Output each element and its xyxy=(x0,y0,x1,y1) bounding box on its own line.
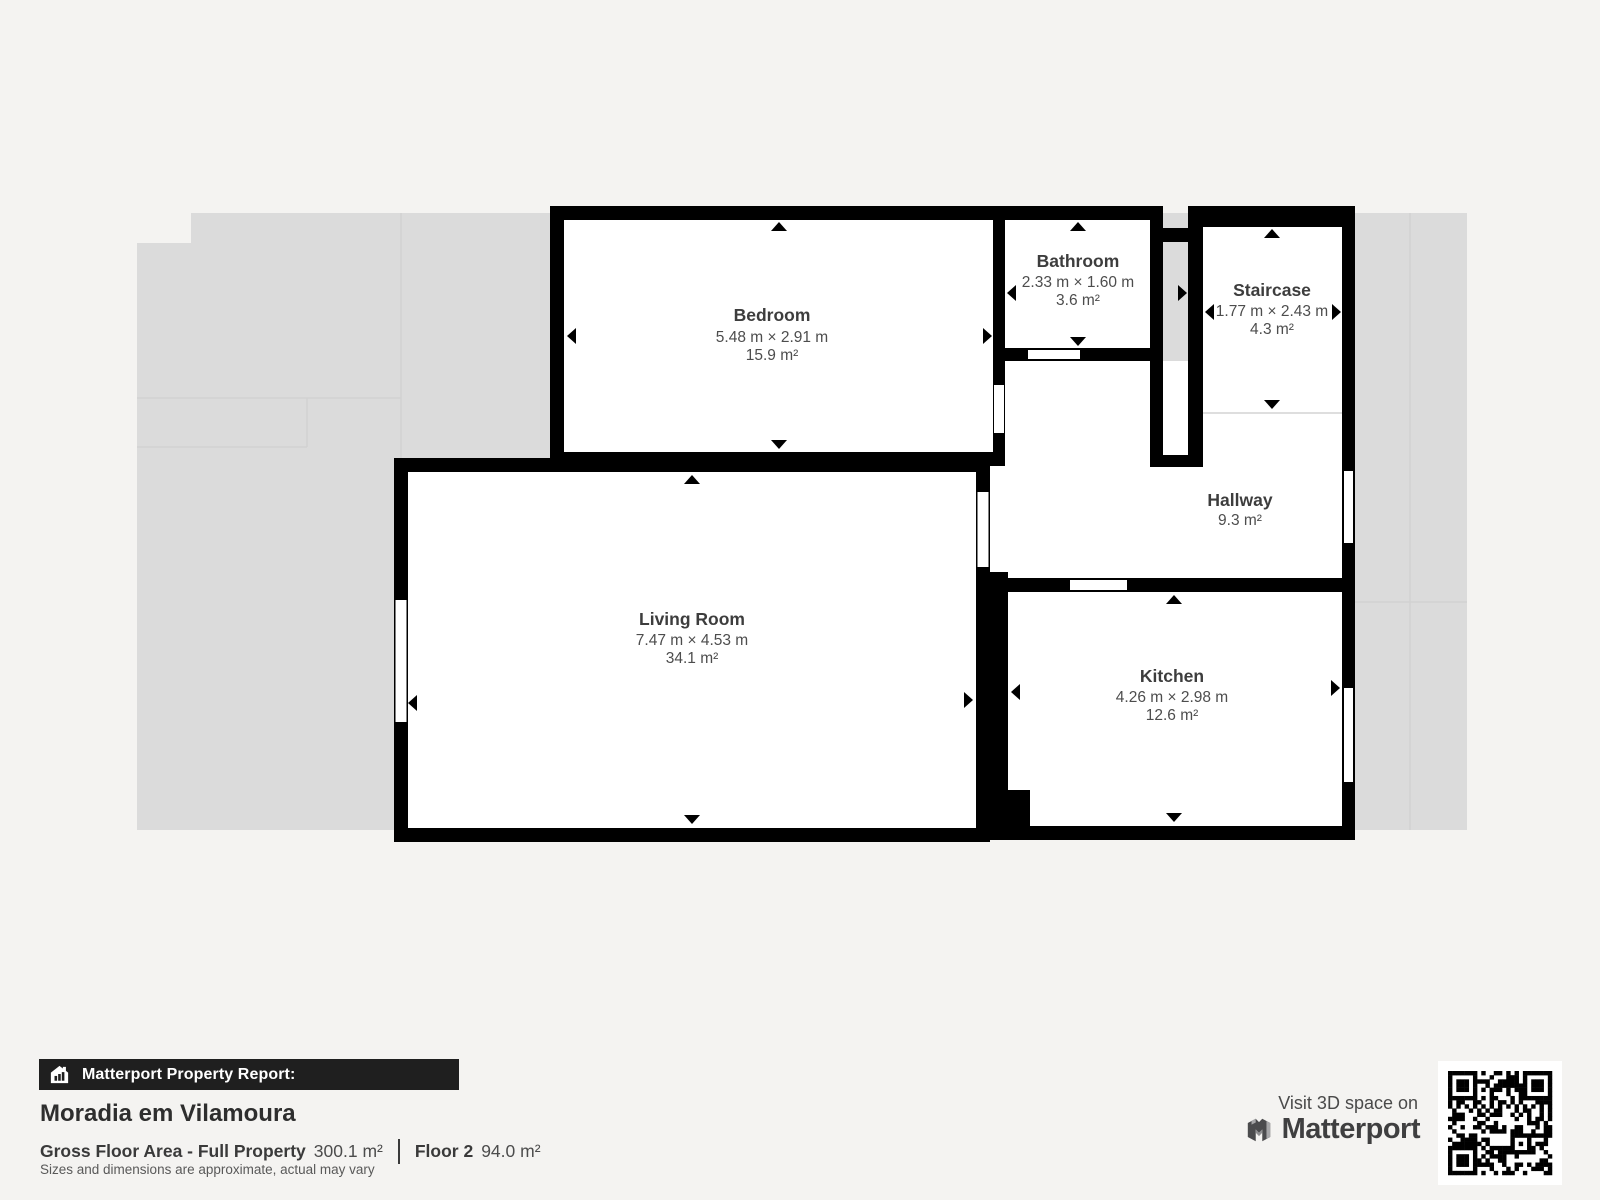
matterport-wordmark: Matterport xyxy=(1282,1113,1420,1146)
svg-text:4.3 m²: 4.3 m² xyxy=(1250,321,1294,338)
floor-plan: Bedroom 5.48 m × 2.91 m 15.9 m² Bathroom… xyxy=(0,0,1600,1050)
svg-text:34.1 m²: 34.1 m² xyxy=(666,650,719,667)
matterport-property-report-page: Bedroom 5.48 m × 2.91 m 15.9 m² Bathroom… xyxy=(0,0,1600,1200)
svg-text:Hallway: Hallway xyxy=(1207,490,1272,510)
floor-area-value: 94.0 m² xyxy=(481,1141,540,1162)
svg-text:12.6 m²: 12.6 m² xyxy=(1146,707,1199,724)
door-opening-kitchen xyxy=(1070,580,1127,590)
window-opening-kitchen xyxy=(1344,688,1353,782)
svg-text:Staircase: Staircase xyxy=(1233,280,1311,300)
svg-text:3.6 m²: 3.6 m² xyxy=(1056,292,1100,309)
window-opening-living-room xyxy=(396,600,407,722)
door-opening-bathroom xyxy=(1028,350,1080,359)
door-opening-bedroom xyxy=(994,385,1004,433)
qr-code xyxy=(1438,1061,1562,1185)
room-floor-hallway xyxy=(990,455,1342,578)
gross-area-value: 300.1 m² xyxy=(314,1141,383,1162)
door-opening-living-room xyxy=(978,492,989,567)
svg-text:Kitchen: Kitchen xyxy=(1140,666,1204,686)
svg-text:Living Room: Living Room xyxy=(639,609,745,629)
window-opening-hallway xyxy=(1344,471,1353,543)
svg-text:Bathroom: Bathroom xyxy=(1037,251,1120,271)
svg-text:7.47 m × 4.53 m: 7.47 m × 4.53 m xyxy=(636,632,748,649)
svg-text:2.33 m × 1.60 m: 2.33 m × 1.60 m xyxy=(1022,274,1134,291)
room-floor-hallway-vestibule xyxy=(1005,361,1150,467)
room-floor-staircase xyxy=(1203,227,1342,413)
report-badge-bar: Matterport Property Report: xyxy=(39,1059,459,1090)
report-badge-label: Matterport Property Report: xyxy=(82,1066,295,1084)
floor-area-line: Gross Floor Area - Full Property 300.1 m… xyxy=(40,1139,541,1164)
svg-text:15.9 m²: 15.9 m² xyxy=(746,347,799,364)
property-name: Moradia em Vilamoura xyxy=(40,1100,296,1128)
matterport-logo: Matterport xyxy=(1245,1113,1420,1146)
svg-text:1.77 m × 2.43 m: 1.77 m × 2.43 m xyxy=(1216,303,1328,320)
disclaimer-text: Sizes and dimensions are approximate, ac… xyxy=(40,1162,375,1177)
visit-3d-space-label: Visit 3D space on xyxy=(1278,1093,1418,1114)
closet-void xyxy=(1163,361,1188,455)
matterport-logo-icon xyxy=(1245,1116,1273,1144)
room-floor-hallway-under-stairs xyxy=(1203,405,1342,467)
svg-text:Bedroom: Bedroom xyxy=(734,305,811,325)
divider xyxy=(398,1139,400,1164)
staircase-open-boundary xyxy=(1203,412,1342,414)
svg-text:5.48 m × 2.91 m: 5.48 m × 2.91 m xyxy=(716,329,828,346)
house-chart-icon xyxy=(48,1063,71,1086)
svg-text:9.3 m²: 9.3 m² xyxy=(1218,512,1262,529)
svg-text:4.26 m × 2.98 m: 4.26 m × 2.98 m xyxy=(1116,689,1228,706)
floor-label: Floor 2 xyxy=(415,1141,473,1162)
gross-area-label: Gross Floor Area - Full Property xyxy=(40,1141,306,1162)
